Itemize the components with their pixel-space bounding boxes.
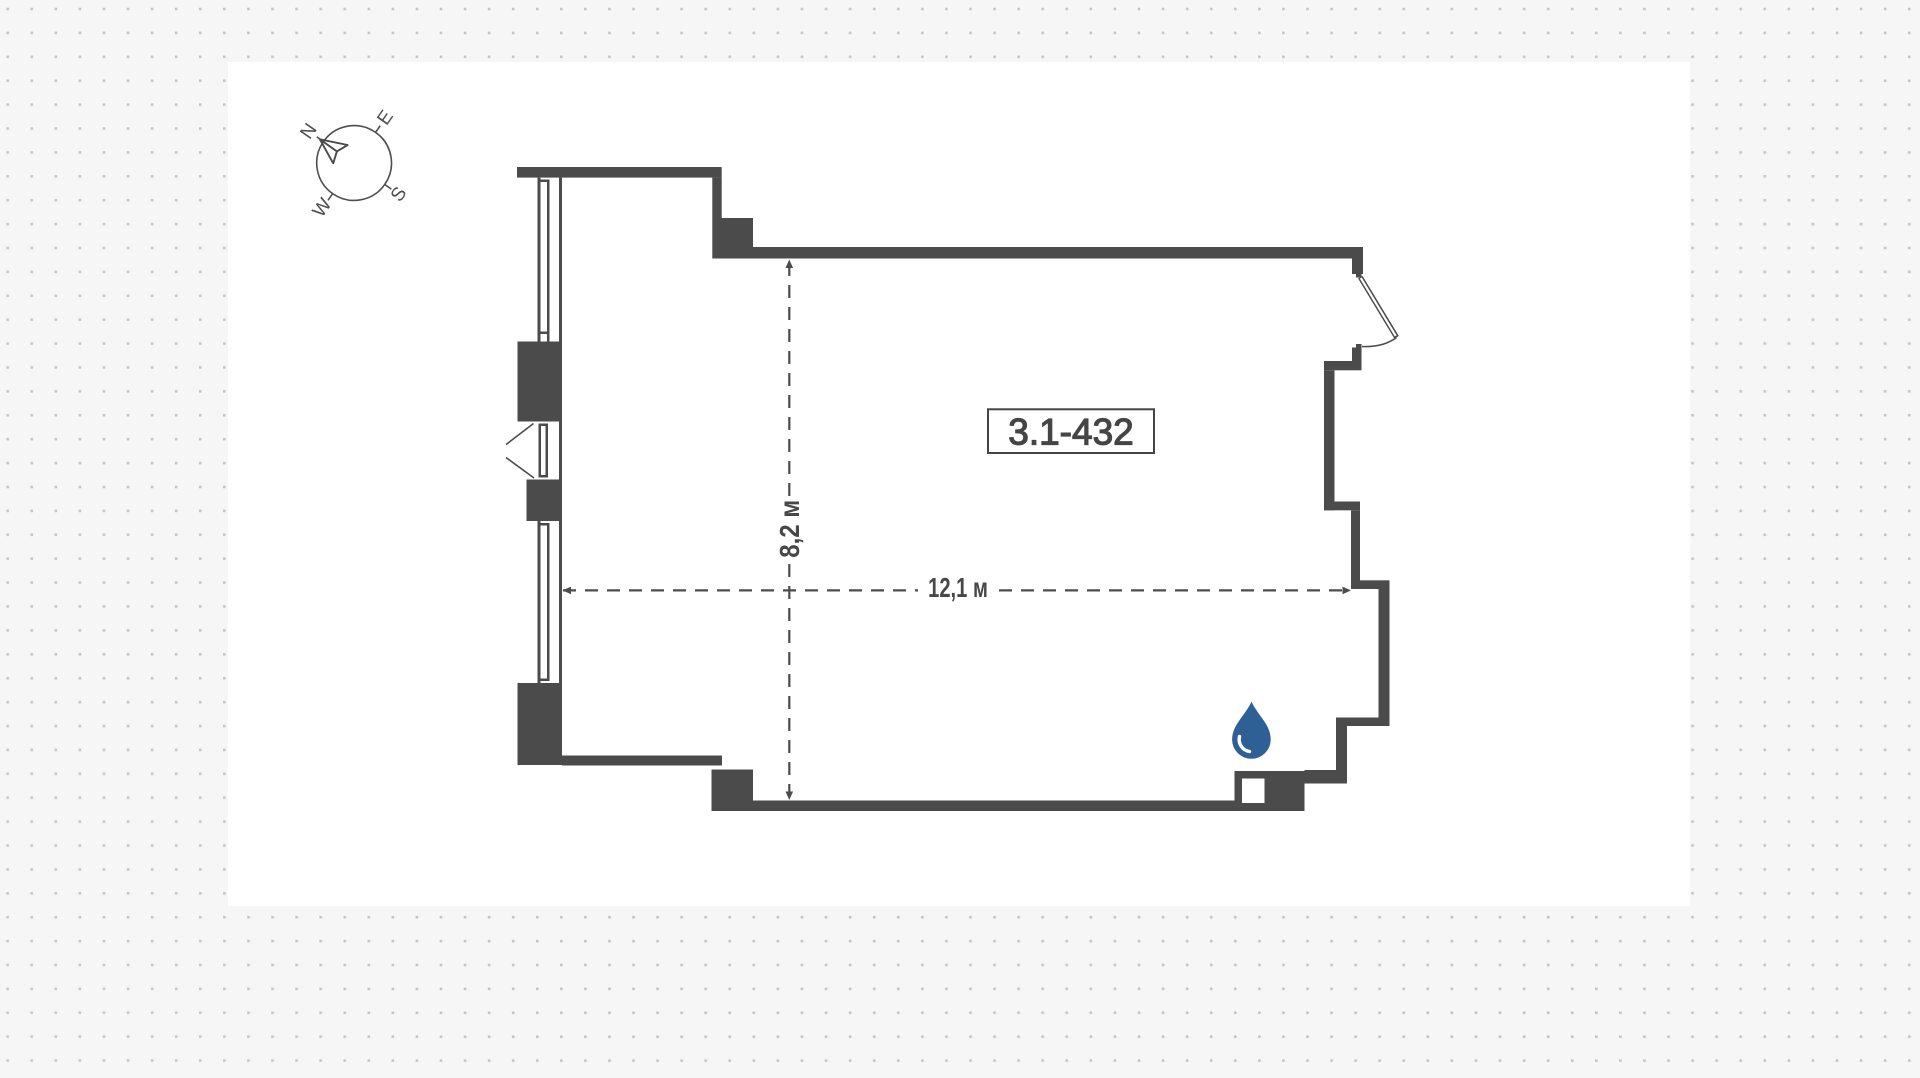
svg-text:3.1-432: 3.1-432 bbox=[1008, 412, 1134, 453]
svg-text:12,1 м: 12,1 м bbox=[928, 573, 988, 604]
svg-text:8,2 м: 8,2 м bbox=[773, 500, 805, 558]
